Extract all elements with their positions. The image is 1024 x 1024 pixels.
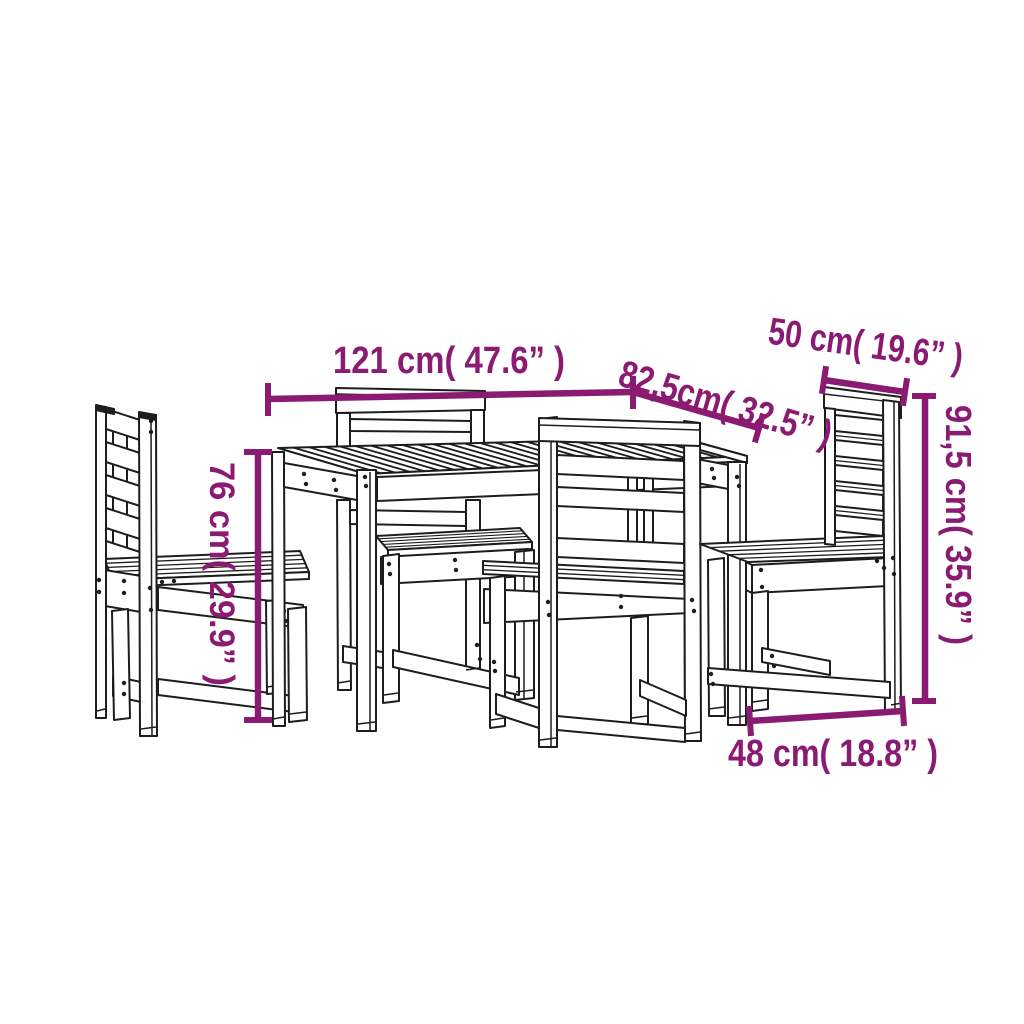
svg-text:76 cm( 29.9” ): 76 cm( 29.9” ) (202, 462, 241, 686)
svg-text:91,5 cm( 35.9” ): 91,5 cm( 35.9” ) (938, 405, 979, 645)
svg-text:121 cm( 47.6” ): 121 cm( 47.6” ) (333, 340, 565, 382)
svg-text:48 cm( 18.8” ): 48 cm( 18.8” ) (728, 733, 938, 775)
